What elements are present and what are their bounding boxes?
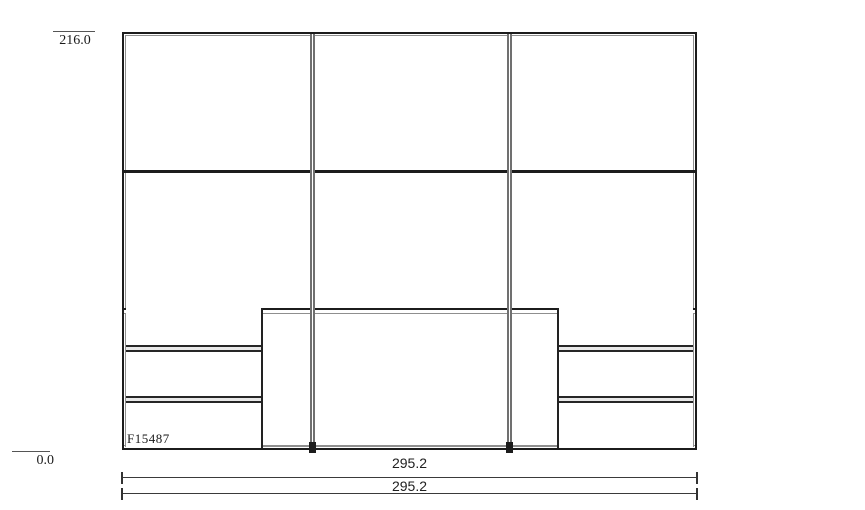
filler-panel-right xyxy=(512,308,557,448)
filler-panel-left xyxy=(263,308,310,448)
drawer-stack-left xyxy=(126,308,263,448)
drawer-separator xyxy=(126,396,261,403)
elevation-value-bottom: 0.0 xyxy=(12,454,54,468)
elevation-line-bottom xyxy=(12,451,50,452)
cabinet-elevation-view: F15487 xyxy=(122,32,697,450)
drawer-front xyxy=(559,403,693,448)
dimension-line-row2 xyxy=(122,493,697,494)
drawing-canvas: 216.0 0.0 F15487 295.2 xyxy=(0,0,865,510)
divider-foot-right xyxy=(506,442,513,453)
shelf-line-upper xyxy=(124,170,695,173)
drawer-separator xyxy=(126,345,261,352)
elevation-value-top: 216.0 xyxy=(53,34,97,48)
vertical-divider-left xyxy=(310,34,315,448)
elevation-line-top xyxy=(53,31,95,32)
dimension-value-row1: 295.2 xyxy=(122,456,697,470)
divider-foot-left xyxy=(309,442,316,453)
drawer-separator xyxy=(559,345,693,352)
dimension-value-row2: 295.2 xyxy=(122,479,697,493)
dimension-tick xyxy=(121,488,123,500)
drawer-separator xyxy=(559,396,693,403)
dimension-tick xyxy=(696,488,698,500)
drawer-front xyxy=(126,308,261,345)
drawer-stack-right xyxy=(557,308,693,448)
drawer-front xyxy=(559,352,693,396)
model-code-label: F15487 xyxy=(127,432,170,445)
drawer-front xyxy=(559,308,693,345)
drawer-front xyxy=(126,352,261,396)
